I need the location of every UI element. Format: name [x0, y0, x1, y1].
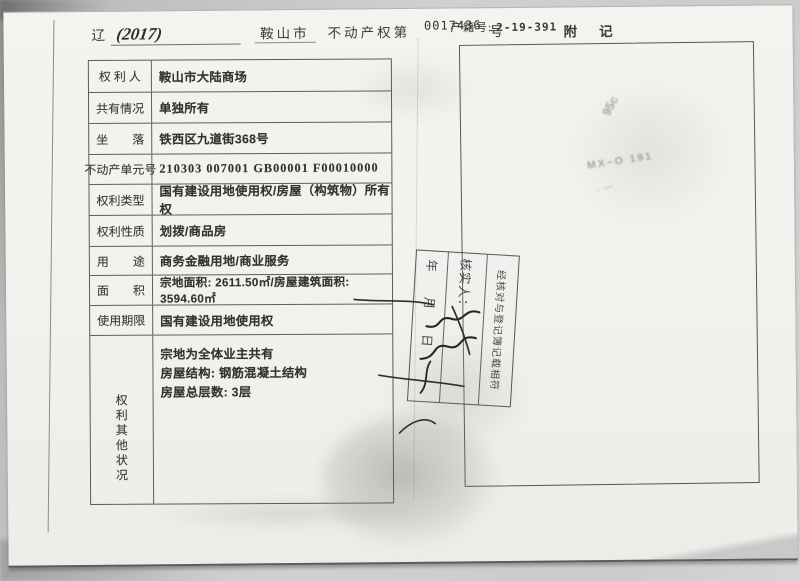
row-label: 用 途 [90, 247, 153, 275]
scanned-certificate-page: 辽 (2017) 鞍山市 不动产权第 0017436 号 产籍号:2-19-39… [3, 4, 797, 568]
city-name: 鞍山市 [254, 22, 316, 44]
property-file-value: 2-19-391 [496, 20, 557, 34]
table-row-term: 使用期限 国有建设用地使用权 [90, 303, 392, 335]
row-label: 不动产单元号 [89, 155, 152, 184]
property-file-number: 产籍号:2-19-391 [450, 18, 557, 35]
row-label-vertical: 权利其他状况 [90, 336, 154, 504]
certificate-header: 辽 (2017) 鞍山市 不动产权第 0017436 号 [91, 20, 503, 46]
page-content: 辽 (2017) 鞍山市 不动产权第 0017436 号 产籍号:2-19-39… [3, 5, 797, 566]
table-row-right-type: 权利类型 国有建设用地使用权/房屋（构筑物）所有权 [89, 182, 391, 215]
table-row-right-nature: 权利性质 划拨/商品房 [90, 213, 392, 246]
row-value: 国有建设用地使用权 [153, 304, 392, 334]
table-row-other-status: 权利其他状况 宗地为全体业主共有 房屋结构: 钢筋混凝土结构 房屋总层数: 3层 [90, 333, 393, 504]
row-value: 商务金融用地/商业服务 [153, 245, 392, 274]
row-value: 国有建设用地使用权/房屋（构筑物）所有权 [152, 183, 391, 214]
table-row-unit-number: 不动产单元号 210303 007001 GB00001 F00010000 [89, 152, 391, 184]
other-status-line: 宗地为全体业主共有 [160, 345, 273, 365]
table-row-usage: 用 途 商务金融用地/商业服务 [90, 244, 392, 275]
year-blank: (2017) [110, 24, 240, 46]
table-row-area: 面 积 宗地面积: 2611.50㎡/房屋建筑面积: 3594.60㎡ [90, 273, 392, 305]
certificate-type-text: 不动产权第 [327, 21, 410, 42]
other-status-line: 房屋总层数: 3层 [161, 383, 252, 402]
row-label: 权利性质 [90, 216, 153, 246]
row-label: 使用期限 [90, 306, 153, 335]
row-label: 共有情况 [89, 93, 152, 123]
table-row-holder: 权 利 人 鞍山市大陆商场 [89, 59, 391, 92]
page-corner-curl [647, 532, 797, 559]
notes-section-title: 附记 [563, 20, 634, 41]
row-label: 面 积 [90, 276, 153, 305]
row-value: 铁西区九道街368号 [152, 122, 391, 153]
row-value: 宗地面积: 2611.50㎡/房屋建筑面积: 3594.60㎡ [153, 274, 392, 304]
row-label: 权 利 人 [89, 61, 152, 92]
verification-stamp: 经核对与登记簿记载相符 核实人： 年 月 日 [407, 249, 520, 407]
handwritten-year: (2017) [115, 24, 163, 44]
table-row-location: 坐 落 铁西区九道街368号 [89, 121, 391, 154]
other-status-line: 房屋结构: 钢筋混凝土结构 [160, 364, 307, 384]
property-file-label: 产籍号: [450, 22, 492, 34]
row-label: 坐 落 [89, 124, 152, 154]
row-value: 划拨/商品房 [153, 214, 392, 245]
row-value: 210303 007001 GB00001 F00010000 [152, 153, 391, 183]
property-info-table: 权 利 人 鞍山市大陆商场 共有情况 单独所有 坐 落 铁西区九道街368号 不… [88, 58, 394, 505]
row-label: 权利类型 [89, 185, 152, 215]
table-row-ownership: 共有情况 单独所有 [89, 90, 391, 123]
binding-fold-line [48, 20, 55, 532]
province-prefix: 辽 [91, 24, 106, 44]
row-value: 鞍山市大陆商场 [152, 59, 391, 91]
row-value-multiline: 宗地为全体业主共有 房屋结构: 钢筋混凝土结构 房屋总层数: 3层 [153, 334, 393, 503]
row-value: 单独所有 [152, 91, 391, 122]
